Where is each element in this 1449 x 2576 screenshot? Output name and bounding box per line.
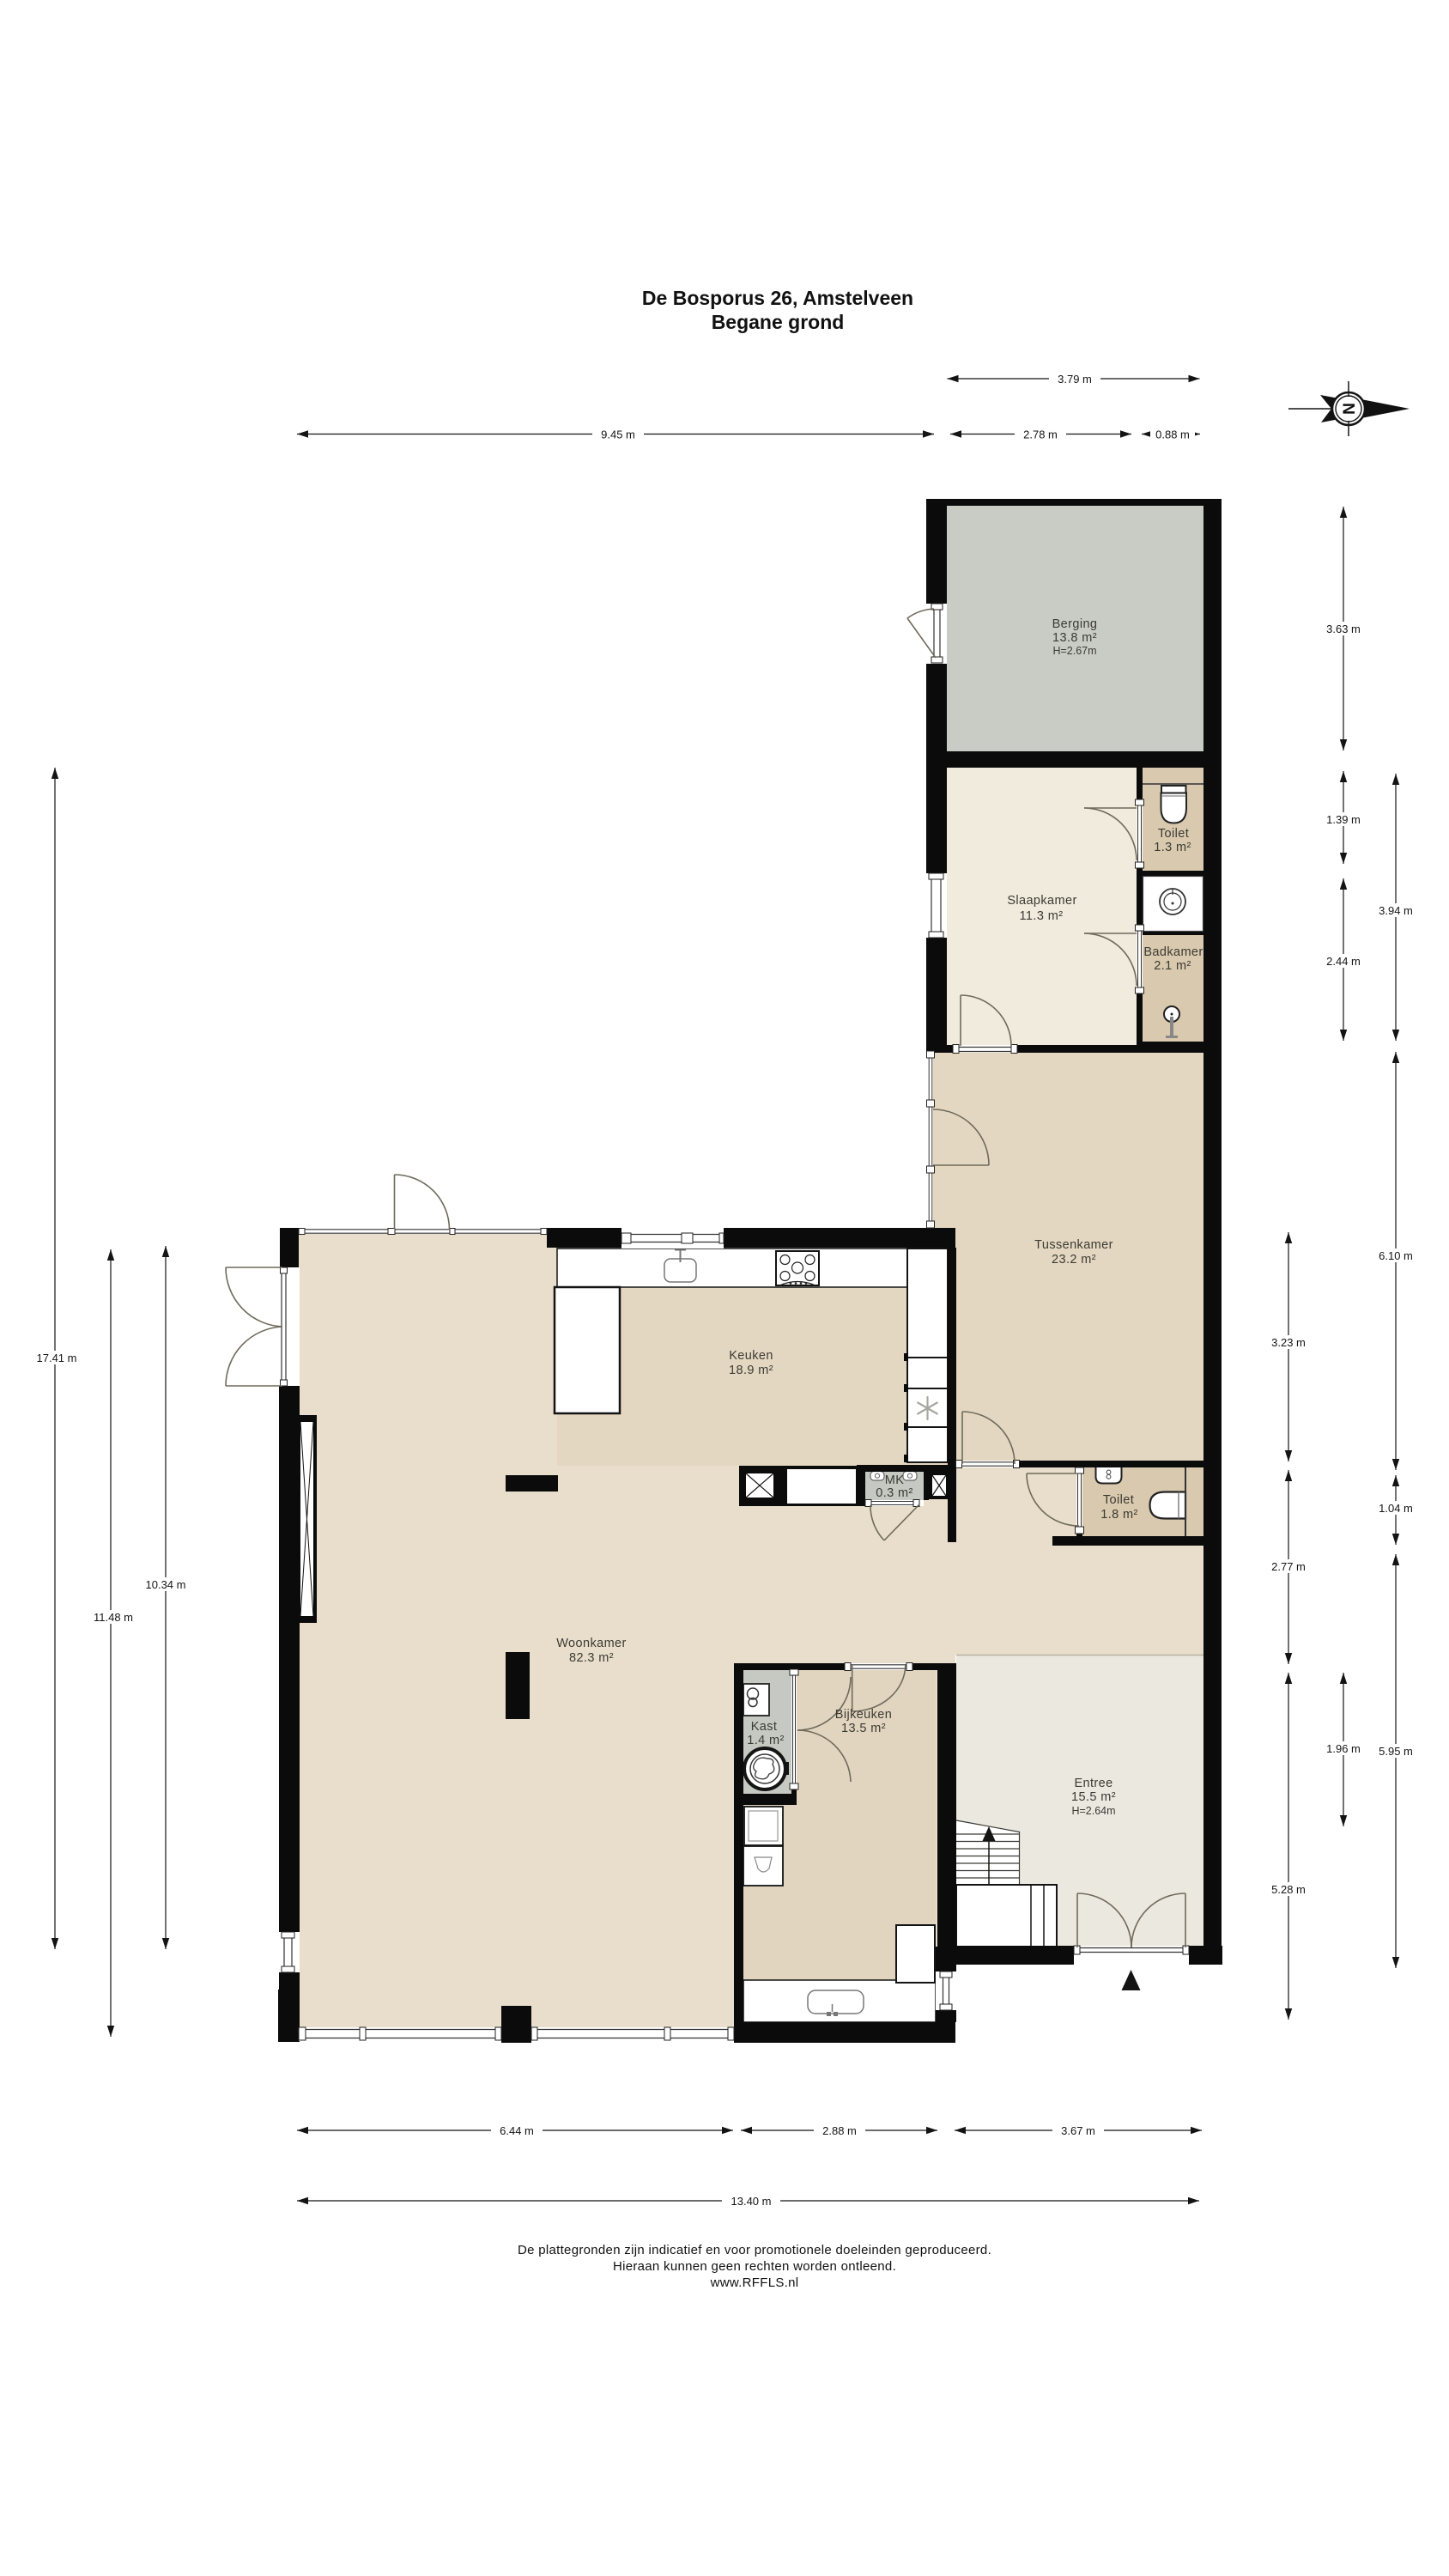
svg-text:1.39 m: 1.39 m — [1326, 813, 1361, 826]
svg-text:De Bosporus 26, Amstelveen: De Bosporus 26, Amstelveen — [642, 287, 913, 309]
svg-text:H=2.64m: H=2.64m — [1071, 1805, 1115, 1817]
svg-text:Bijkeuken: Bijkeuken — [835, 1708, 892, 1722]
svg-text:2.1 m²: 2.1 m² — [1154, 959, 1191, 973]
svg-text:6.44 m: 6.44 m — [500, 2124, 534, 2137]
svg-text:Slaapkamer: Slaapkamer — [1007, 894, 1076, 908]
svg-text:Berging: Berging — [1052, 617, 1098, 631]
svg-text:2.78 m: 2.78 m — [1023, 428, 1058, 441]
svg-text:Toilet: Toilet — [1103, 1493, 1134, 1507]
svg-text:1.8 m²: 1.8 m² — [1100, 1508, 1138, 1522]
svg-text:1.3 m²: 1.3 m² — [1154, 841, 1191, 854]
svg-text:2.44 m: 2.44 m — [1326, 955, 1361, 968]
svg-text:Begane grond: Begane grond — [712, 311, 845, 333]
svg-text:Keuken: Keuken — [729, 1349, 773, 1363]
svg-text:23.2 m²: 23.2 m² — [1052, 1253, 1096, 1267]
svg-text:3.23 m: 3.23 m — [1271, 1336, 1306, 1349]
svg-text:9.45 m: 9.45 m — [601, 428, 635, 441]
svg-text:1.96 m: 1.96 m — [1326, 1742, 1361, 1755]
svg-text:6.10 m: 6.10 m — [1379, 1249, 1413, 1262]
svg-text:3.94 m: 3.94 m — [1379, 904, 1413, 917]
svg-text:5.95 m: 5.95 m — [1379, 1745, 1413, 1758]
svg-text:10.34 m: 10.34 m — [146, 1578, 186, 1591]
svg-text:Hieraan kunnen geen rechten wo: Hieraan kunnen geen rechten worden ontle… — [613, 2259, 896, 2274]
svg-text:17.41 m: 17.41 m — [37, 1352, 77, 1364]
svg-text:2.77 m: 2.77 m — [1271, 1560, 1306, 1573]
svg-text:De plattegronden zijn indicati: De plattegronden zijn indicatief en voor… — [518, 2243, 991, 2257]
svg-text:13.5 m²: 13.5 m² — [841, 1722, 886, 1735]
svg-text:0.88 m: 0.88 m — [1155, 428, 1190, 441]
svg-text:3.63 m: 3.63 m — [1326, 623, 1361, 635]
svg-text:18.9 m²: 18.9 m² — [729, 1364, 773, 1377]
svg-text:13.40 m: 13.40 m — [731, 2195, 772, 2208]
svg-text:82.3 m²: 82.3 m² — [569, 1651, 614, 1665]
svg-text:5.28 m: 5.28 m — [1271, 1883, 1306, 1896]
svg-text:Woonkamer: Woonkamer — [556, 1637, 627, 1650]
svg-text:1.04 m: 1.04 m — [1379, 1502, 1413, 1515]
svg-text:Kast: Kast — [751, 1720, 778, 1734]
svg-text:11.3 m²: 11.3 m² — [1020, 909, 1064, 923]
svg-text:0.3 m²: 0.3 m² — [876, 1486, 913, 1500]
svg-text:Badkamer: Badkamer — [1143, 945, 1203, 959]
svg-text:N: N — [1339, 403, 1357, 415]
svg-text:3.79 m: 3.79 m — [1058, 373, 1092, 386]
svg-text:MK: MK — [885, 1473, 905, 1487]
svg-text:www.RFFLS.nl: www.RFFLS.nl — [710, 2275, 799, 2290]
svg-text:Toilet: Toilet — [1158, 827, 1189, 841]
svg-text:15.5 m²: 15.5 m² — [1071, 1790, 1116, 1804]
svg-text:H=2.67m: H=2.67m — [1052, 645, 1096, 657]
svg-text:11.48 m: 11.48 m — [94, 1611, 133, 1624]
svg-text:3.67 m: 3.67 m — [1061, 2124, 1095, 2137]
svg-text:Tussenkamer: Tussenkamer — [1034, 1238, 1113, 1252]
svg-text:1.4 m²: 1.4 m² — [747, 1734, 785, 1747]
svg-text:2.88 m: 2.88 m — [822, 2124, 857, 2137]
svg-text:Entree: Entree — [1074, 1777, 1113, 1790]
svg-text:13.8 m²: 13.8 m² — [1052, 631, 1097, 645]
